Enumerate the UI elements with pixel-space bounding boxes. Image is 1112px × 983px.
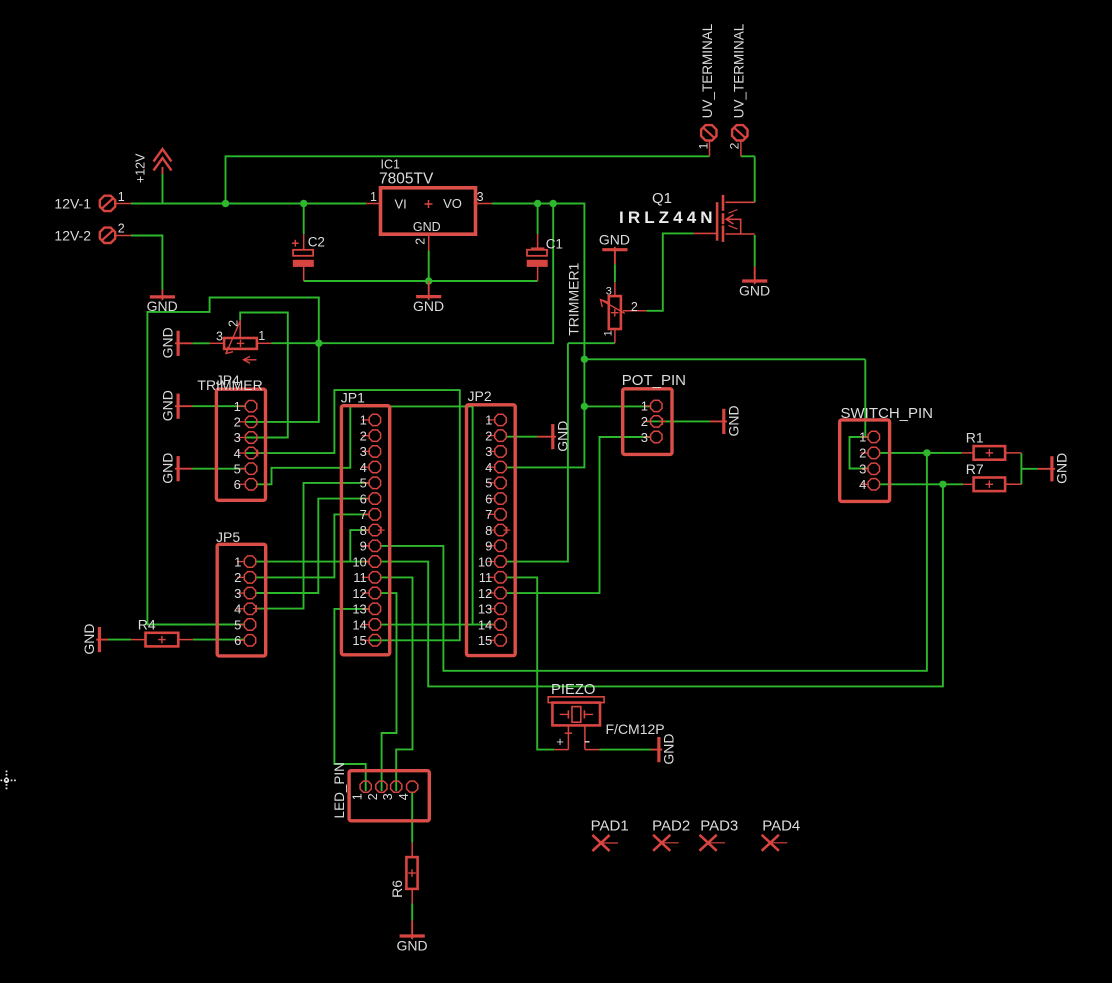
svg-text:4: 4 [397,793,411,800]
svg-text:13: 13 [478,602,492,617]
svg-text:8: 8 [485,523,492,538]
svg-text:+: + [556,734,564,749]
svg-text:GND: GND [413,220,441,234]
svg-text:2: 2 [118,221,125,235]
svg-text:IRLZ44N: IRLZ44N [619,208,717,227]
svg-text:3: 3 [381,793,395,800]
svg-text:2: 2 [485,428,492,443]
svg-text:GND: GND [599,231,630,247]
svg-text:1: 1 [258,329,265,343]
svg-text:3: 3 [485,444,492,459]
svg-text:GND: GND [413,298,444,314]
svg-text:C1: C1 [546,236,563,251]
svg-text:2: 2 [234,570,241,585]
svg-text:1: 1 [351,793,365,800]
svg-text:3: 3 [859,462,866,477]
svg-text:4: 4 [360,460,367,475]
svg-text:IC1: IC1 [381,157,401,171]
svg-text:3: 3 [234,586,241,601]
svg-text:3: 3 [234,430,241,445]
svg-text:Q1: Q1 [652,190,672,207]
svg-text:12V-2: 12V-2 [54,228,91,244]
svg-text:7805TV: 7805TV [379,171,434,188]
svg-text:R7: R7 [966,461,984,477]
svg-text:TRIMMER1: TRIMMER1 [566,262,582,335]
svg-text:1: 1 [602,330,614,336]
svg-text:3: 3 [360,444,367,459]
svg-text:14: 14 [352,617,366,632]
svg-text:3: 3 [606,286,612,298]
svg-text:3: 3 [216,330,223,344]
svg-text:12: 12 [352,586,366,601]
svg-text:15: 15 [352,633,366,648]
svg-text:GND: GND [81,624,97,655]
svg-text:GND: GND [160,390,176,421]
svg-text:1: 1 [696,142,710,149]
svg-text:7: 7 [485,507,492,522]
svg-text:5: 5 [485,476,492,491]
svg-text:1: 1 [485,413,492,428]
svg-text:2: 2 [413,238,427,245]
svg-text:F/CM12P: F/CM12P [606,721,665,737]
svg-text:VI: VI [395,196,407,211]
svg-text:GND: GND [1054,453,1070,484]
svg-text:UV_TERMINAL: UV_TERMINAL [732,23,747,118]
svg-text:5: 5 [234,617,241,632]
svg-text:R4: R4 [138,616,156,632]
svg-text:PAD4: PAD4 [762,818,800,835]
svg-text:JP5: JP5 [216,529,240,545]
svg-text:GND: GND [147,298,178,314]
svg-text:GND: GND [396,937,427,953]
svg-text:11: 11 [479,570,493,585]
svg-text:GND: GND [726,405,742,436]
svg-text:1: 1 [234,399,241,414]
svg-text:POT_PIN: POT_PIN [622,372,686,389]
svg-text:SWITCH_PIN: SWITCH_PIN [841,405,934,422]
svg-text:2: 2 [631,300,638,314]
svg-text:1: 1 [641,399,648,414]
svg-text:JP1: JP1 [341,389,365,405]
svg-text:12V-1: 12V-1 [54,196,91,212]
svg-text:C2: C2 [308,234,325,249]
svg-text:VO: VO [443,196,462,211]
svg-text:TRIMMER: TRIMMER [197,377,262,393]
svg-text:9: 9 [360,539,367,554]
svg-text:2: 2 [859,446,866,461]
svg-text:6: 6 [485,491,492,506]
svg-text:9: 9 [485,539,492,554]
svg-text:6: 6 [360,491,367,506]
svg-text:5: 5 [234,461,241,476]
svg-text:PAD3: PAD3 [700,818,738,835]
svg-text:PAD2: PAD2 [652,818,690,835]
svg-text:11: 11 [353,570,367,585]
svg-text:1: 1 [360,413,367,428]
svg-text:JP2: JP2 [468,388,492,404]
svg-text:1: 1 [859,430,866,445]
svg-text:2: 2 [641,414,648,429]
svg-text:GND: GND [160,453,176,484]
svg-text:R6: R6 [389,880,405,898]
svg-text:2: 2 [234,415,241,430]
svg-text:4: 4 [485,460,492,475]
svg-text:1: 1 [370,190,377,204]
svg-text:12: 12 [478,586,492,601]
svg-text:15: 15 [478,633,492,648]
svg-text:GND: GND [739,282,770,298]
svg-text:7: 7 [360,507,367,522]
svg-text:GND: GND [555,421,571,452]
svg-text:8: 8 [360,523,367,538]
svg-text:13: 13 [352,602,366,617]
svg-text:6: 6 [234,633,241,648]
svg-text:3: 3 [477,190,484,204]
svg-text:GND: GND [661,734,677,765]
svg-text:4: 4 [234,446,241,461]
svg-text:3: 3 [641,430,648,445]
svg-text:1: 1 [118,190,125,204]
svg-text:UV_TERMINAL: UV_TERMINAL [700,23,715,118]
svg-text:2: 2 [360,428,367,443]
svg-text:+12V: +12V [134,153,148,183]
svg-text:R1: R1 [966,429,984,445]
svg-text:LED_PIN: LED_PIN [332,762,347,818]
svg-text:4: 4 [234,602,241,617]
svg-text:PAD1: PAD1 [591,818,629,835]
svg-text:PIEZO: PIEZO [551,682,595,698]
svg-text:10: 10 [478,554,492,569]
svg-text:14: 14 [478,617,492,632]
svg-text:1: 1 [234,554,241,569]
svg-text:6: 6 [234,477,241,492]
svg-text:4: 4 [859,477,866,492]
svg-text:2: 2 [728,142,742,149]
svg-text:2: 2 [226,320,240,327]
svg-text:5: 5 [360,476,367,491]
svg-text:2: 2 [366,793,380,800]
svg-text:10: 10 [352,554,366,569]
svg-text:GND: GND [160,327,176,358]
